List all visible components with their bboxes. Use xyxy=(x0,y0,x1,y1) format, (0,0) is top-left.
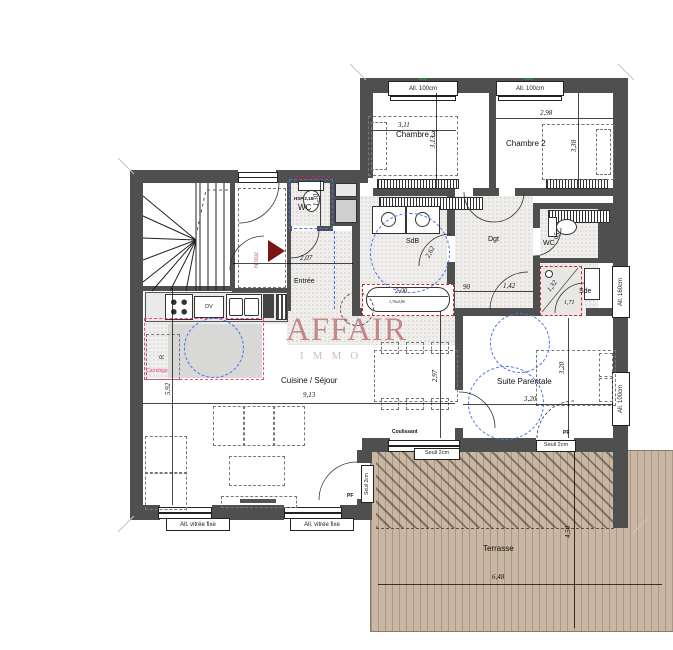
pf-label-1: PF xyxy=(347,493,353,499)
suite-text: Suite Parentale xyxy=(497,377,552,386)
unit-number-text: N 002 xyxy=(254,252,260,268)
wall-chambres-bottom-c xyxy=(515,188,613,196)
dim-207: 2,07 xyxy=(300,254,312,262)
wc1-hsp-text: HSP 2,18 xyxy=(294,196,313,201)
wall-terraceline-b xyxy=(458,438,536,452)
seuil-label-2: Seuil 2cm xyxy=(536,440,576,452)
bed-suite-pillow-1 xyxy=(599,353,613,377)
window-closet-top xyxy=(238,172,278,183)
watermark-subtitle: IMMO xyxy=(300,350,407,362)
seuil-1-text: Seuil 2cm xyxy=(425,451,449,457)
dgt-text: Dgt xyxy=(488,236,499,243)
dim-suite-w: 3,20 xyxy=(524,395,536,403)
sde-text: Sde xyxy=(579,288,591,295)
dimline-sejour-w xyxy=(143,403,455,404)
watermark: AFFAIR IMMO xyxy=(286,314,407,362)
label-suite: Suite Parentale xyxy=(497,377,552,386)
dim-tubsize: 1,70x0,80 xyxy=(389,299,405,304)
dim-313: 3,13 xyxy=(429,136,437,148)
label-wc1: WC xyxy=(298,203,311,212)
shaft-duct xyxy=(335,183,357,197)
wall-wc2-left-b xyxy=(533,256,540,316)
window-top-2-text: All. 100cm xyxy=(516,86,544,92)
window-bottom-1-text: All. vitrée fixe xyxy=(180,522,216,528)
seuil-3-text: Seuil 2cm xyxy=(365,473,370,495)
wall-right-c xyxy=(613,424,628,450)
dim-sde-2: 1,71 xyxy=(564,300,575,306)
window-top-1-tick xyxy=(418,78,427,80)
dim-suite-h: 3,20 xyxy=(558,362,566,374)
dimline-tub xyxy=(368,296,448,297)
wall-wc2-left-a xyxy=(533,209,540,228)
dim-171: 1,71 xyxy=(564,300,575,306)
dimline-chambre3-w xyxy=(373,130,456,131)
dim-chambre2-w: 2,98 xyxy=(540,109,552,117)
chair-5 xyxy=(406,398,424,410)
chair-4 xyxy=(381,398,399,410)
label-entree: Entrée xyxy=(294,278,315,285)
dim-terrasse-h: 4,50 xyxy=(564,526,572,538)
wall-suite-top-b xyxy=(586,308,613,316)
wall-top-left-a xyxy=(130,170,238,183)
turning-circle-suite-1 xyxy=(490,313,550,373)
radiator-chambre2 xyxy=(546,179,608,189)
dimline-suite-w xyxy=(463,404,613,405)
dim-311: 3,11 xyxy=(398,121,410,129)
closet-wardrobe xyxy=(238,188,286,288)
window-top-1-text: All. 100cm xyxy=(409,86,437,92)
carrelage-text: Carrelage xyxy=(146,368,168,374)
label-wc1-hsp: HSP 2,18 xyxy=(294,196,313,201)
wall-left xyxy=(130,170,143,520)
dim-sejour-w: 9,13 xyxy=(303,391,315,399)
dim-entree: 2,07 xyxy=(300,254,312,262)
dimline-dgt xyxy=(455,291,533,292)
dim-298: 2,98 xyxy=(540,109,552,117)
seuil-2-text: Seuil 2cm xyxy=(544,443,568,449)
dim-200: 2,00 xyxy=(395,287,407,295)
wall-right-terrace xyxy=(613,450,628,528)
sofa xyxy=(213,406,305,446)
turning-circle-sdb xyxy=(370,213,450,293)
dimline-chambre2-w xyxy=(496,118,613,119)
dim-450: 4,50 xyxy=(564,526,572,538)
wall-chambre-divider xyxy=(489,93,496,188)
window-bottom-2-text: All. vitrée fixe xyxy=(304,522,340,528)
chambre2-text: Chambre 2 xyxy=(506,139,546,148)
sink-basin-2 xyxy=(244,298,259,316)
seuil-label-1: Seuil 2cm xyxy=(414,448,460,460)
dimline-terrasse-h xyxy=(574,452,575,628)
dim-wc2: 95 xyxy=(554,233,562,240)
bed-chambre2-pillow xyxy=(596,129,611,175)
plumbing-line-blue xyxy=(334,231,335,309)
dimline-wc1 xyxy=(320,180,321,226)
chair-2 xyxy=(406,342,424,354)
wall-right-a xyxy=(613,78,628,266)
floor-plan: All. 100cm All. 100cm All. 160cm All. 10… xyxy=(0,0,673,650)
window-right-sde-text: All. 160cm xyxy=(618,278,624,306)
window-right-sde-label: All. 160cm xyxy=(612,266,630,318)
wc2-text: WC xyxy=(543,240,555,247)
label-sejour: Cuisine / Séjour xyxy=(281,376,337,385)
wc1-red-line xyxy=(296,176,330,177)
label-sde: Sde xyxy=(579,288,591,295)
dim-wc1: 1,30 xyxy=(312,194,320,206)
terrace-hatch-edge xyxy=(376,528,614,529)
sink-basin-1 xyxy=(229,298,243,316)
dimline-sejour-h xyxy=(172,288,173,505)
wall-chambres-bottom-a xyxy=(373,188,455,196)
carrelage-label: Carrelage xyxy=(146,368,168,374)
dim-297: 2,97 xyxy=(431,370,439,382)
sofa-seat-1 xyxy=(243,406,245,446)
dim-913: 9,13 xyxy=(303,391,315,399)
dim-dgt-2: 1,42 xyxy=(503,282,515,290)
radiator-chambre3 xyxy=(377,179,459,189)
wc1-text: WC xyxy=(298,203,311,212)
watermark-title: AFFAIR xyxy=(286,314,407,347)
dim-320h: 3,20 xyxy=(558,362,566,374)
window-bottom-2-label: All. vitrée fixe xyxy=(290,518,354,531)
dim-95: 95 xyxy=(554,233,562,240)
sliding-door-text: Coulissant xyxy=(392,429,418,435)
seuil-label-3: Seuil 2cm xyxy=(361,465,374,503)
label-sdb: SdB xyxy=(406,238,419,245)
dishwasher: DV xyxy=(194,296,224,318)
dim-130: 1,30 xyxy=(312,194,320,206)
dim-320w: 3,20 xyxy=(524,395,536,403)
dim-dgt-1: 90 xyxy=(463,283,470,291)
window-right-suite-text: All. 100cm xyxy=(618,385,624,413)
entrance-arrow xyxy=(268,240,285,262)
floor-dgt xyxy=(455,196,533,310)
bed-suite-pillow-2 xyxy=(599,378,613,402)
terrace-hatch-overlay xyxy=(376,450,614,528)
turning-circle-kitchen xyxy=(184,318,244,378)
dimline-table xyxy=(440,311,441,438)
hob xyxy=(165,294,193,320)
dim-chambre3-h: 3,13 xyxy=(429,136,437,148)
dimline-terrasse-w xyxy=(378,584,662,585)
wall-suite-left-b xyxy=(455,428,463,440)
staircase xyxy=(143,183,228,291)
dim-90: 90 xyxy=(463,283,470,291)
sofa-seat-2 xyxy=(273,406,275,446)
wall-terraceline-a xyxy=(362,438,390,452)
dim-648: 6,48 xyxy=(492,573,504,581)
entree-text: Entrée xyxy=(294,278,315,285)
dim-592: 5,92 xyxy=(164,383,172,395)
window-top-2-tick xyxy=(524,78,533,80)
terrasse-text: Terrasse xyxy=(483,544,514,553)
dim-tub-size: 1,70x0,80 xyxy=(389,299,405,304)
dim-table: 2,97 xyxy=(431,370,439,382)
dim-142: 1,42 xyxy=(503,282,515,290)
label-dgt: Dgt xyxy=(488,236,499,243)
window-bottom-1-label: All. vitrée fixe xyxy=(166,518,230,531)
shower-head xyxy=(545,270,553,278)
dim-tub: 2,00 xyxy=(395,287,407,295)
window-top-2-label: All. 100cm xyxy=(496,81,564,96)
dimline-suite-h xyxy=(568,318,569,438)
dimline-entree xyxy=(233,263,353,264)
wall-closet-left xyxy=(230,183,235,290)
dim-chambre2-h: 3,38 xyxy=(570,140,578,152)
window-top-1-label: All. 100cm xyxy=(388,81,458,96)
sejour-text: Cuisine / Séjour xyxy=(281,376,337,385)
wall-chambres-bottom-b xyxy=(473,188,499,196)
oven-unit xyxy=(263,294,274,318)
sliding-door-label: Coulissant xyxy=(392,429,418,435)
sde-vanity xyxy=(584,268,600,300)
shaft-duct2 xyxy=(335,199,357,223)
tv-set xyxy=(240,499,276,503)
wall-terraceline-c xyxy=(574,438,615,452)
coffee-table xyxy=(229,456,285,486)
dim-terrasse-w: 6,48 xyxy=(492,573,504,581)
dishwasher-text: DV xyxy=(205,304,213,310)
pf-1-text: PF xyxy=(347,493,353,499)
wall-stairs-bottom xyxy=(143,286,235,291)
dimline-chambre2-h xyxy=(578,93,579,188)
shelf-unit-divider xyxy=(145,472,187,474)
label-chambre2: Chambre 2 xyxy=(506,139,546,148)
dim-sejour-h: 5,92 xyxy=(164,383,172,395)
sdb-text: SdB xyxy=(406,238,419,245)
dim-chambre3-w: 3,11 xyxy=(398,121,410,129)
label-terrasse: Terrasse xyxy=(483,544,514,553)
dim-338: 3,38 xyxy=(570,140,578,152)
label-wc2: WC xyxy=(543,240,555,247)
